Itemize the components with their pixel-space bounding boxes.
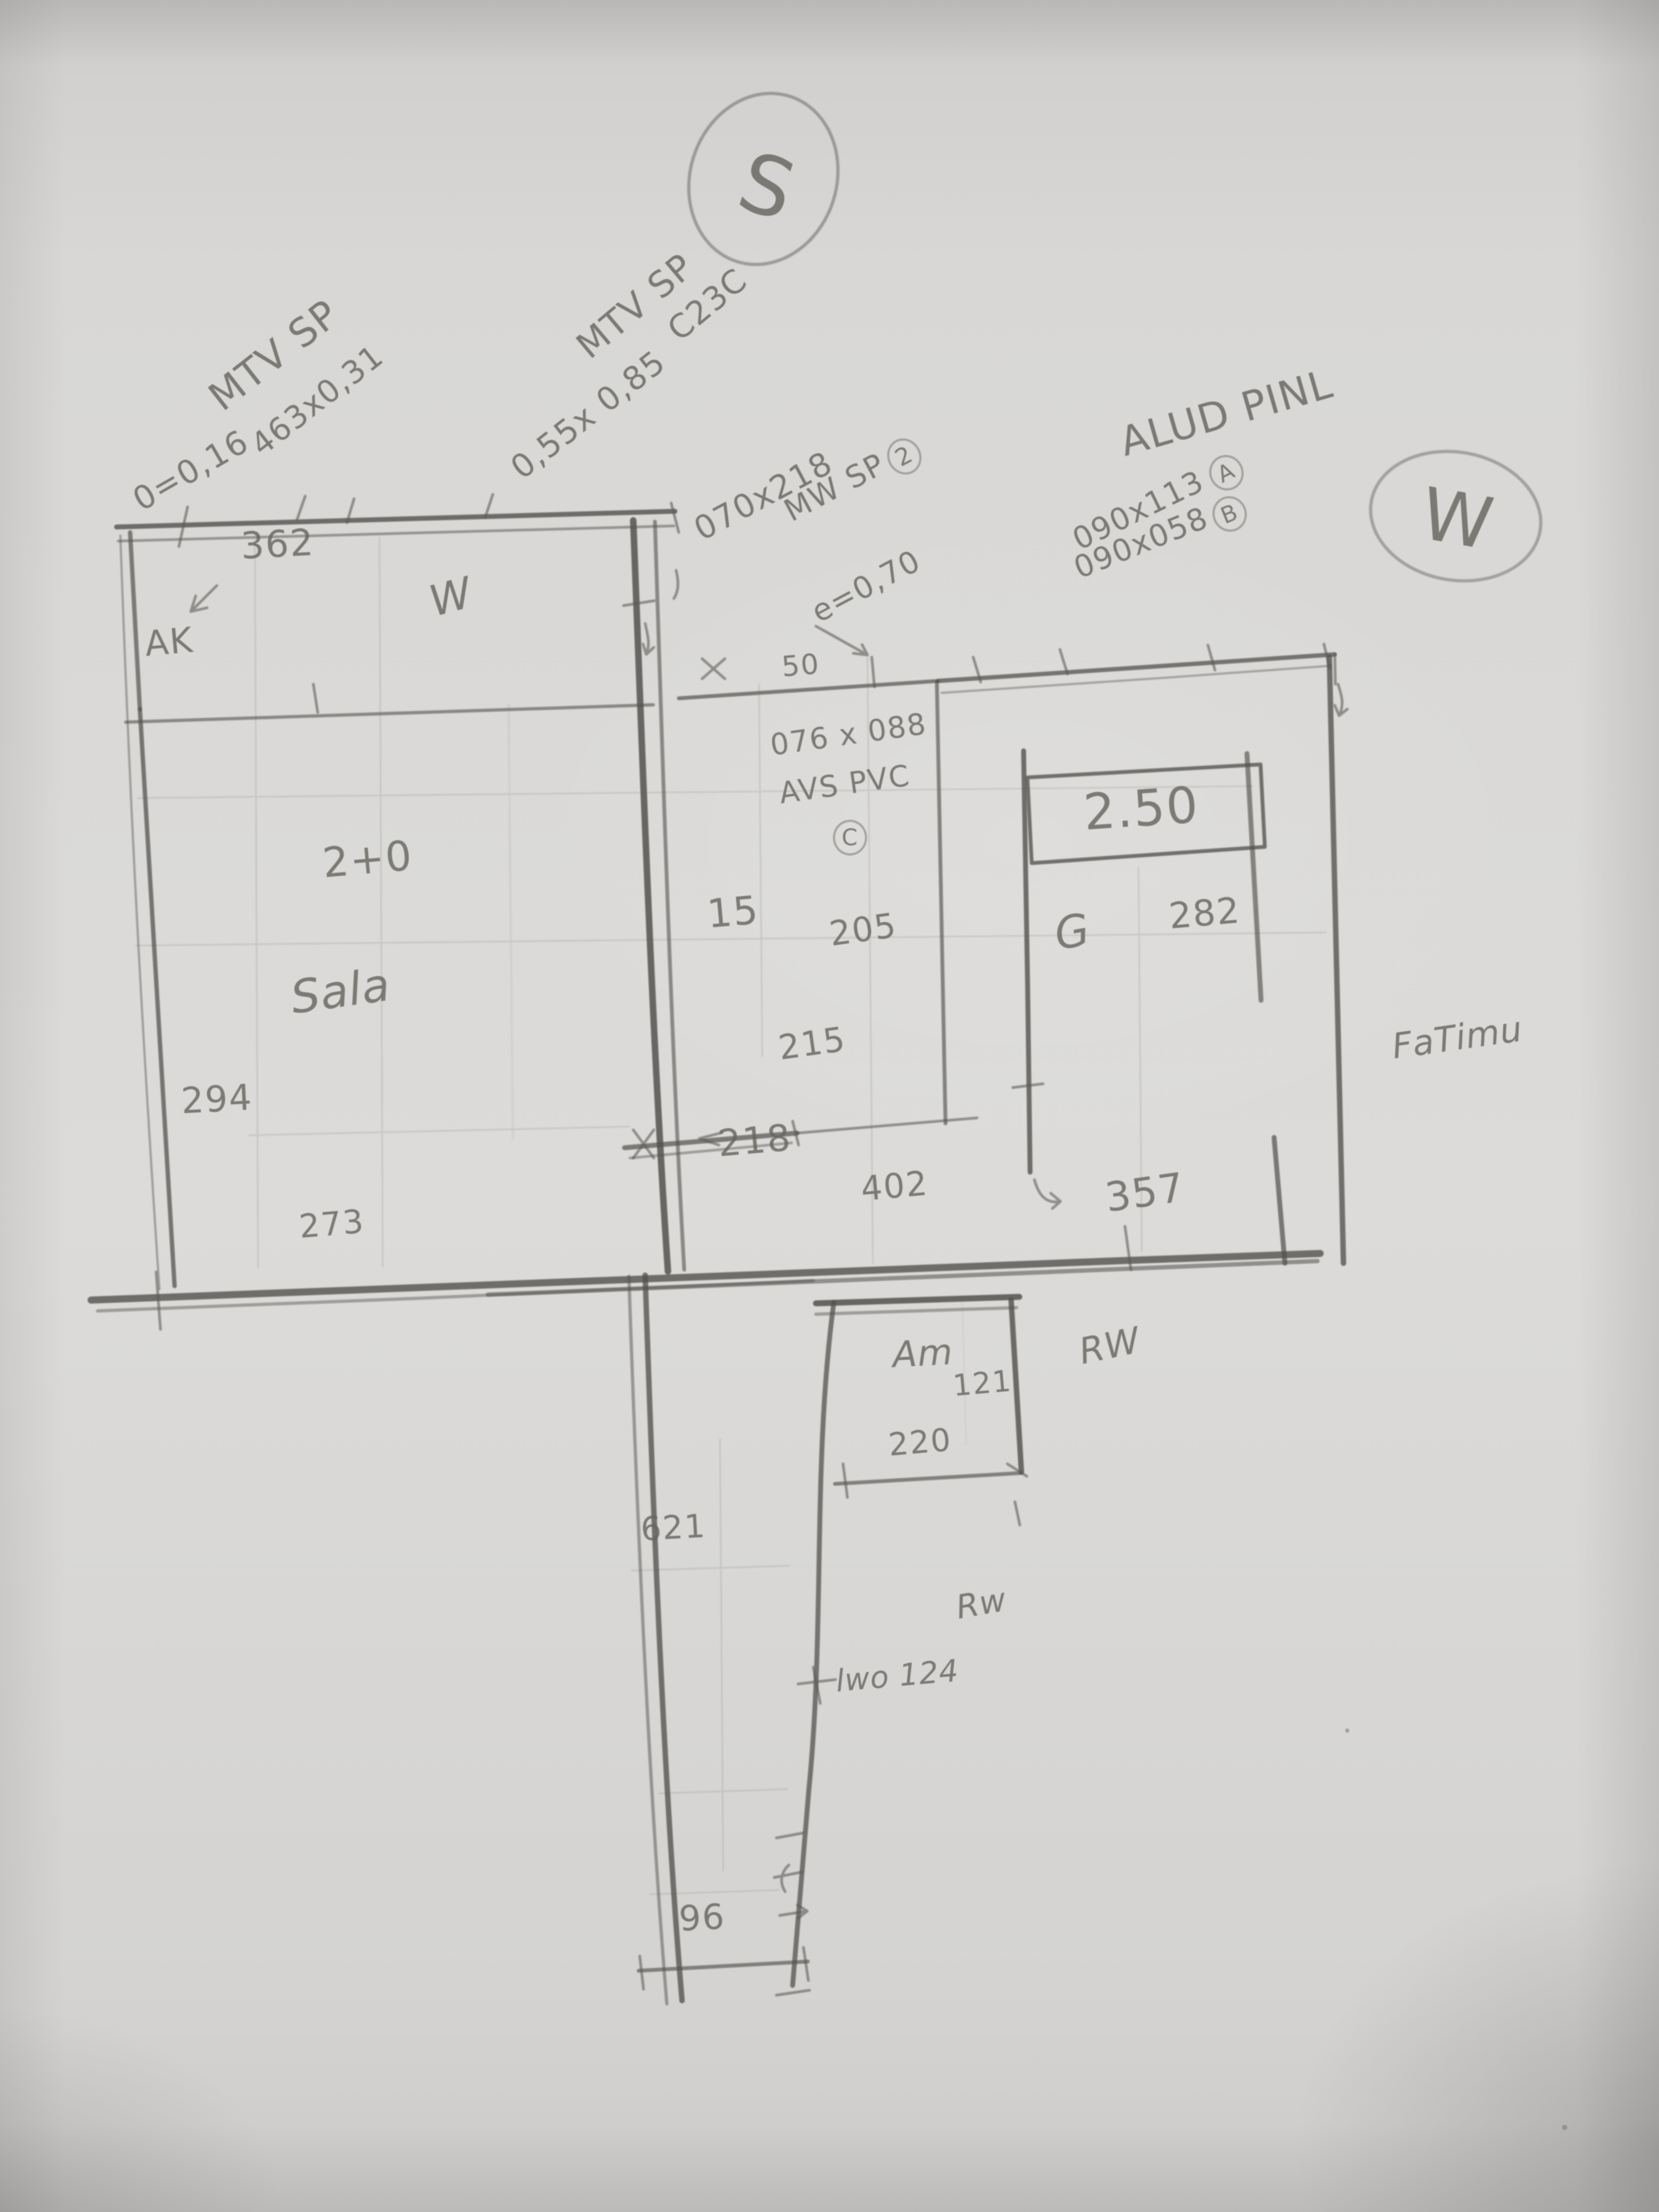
mark-g: G: [1051, 908, 1094, 957]
pencil-dot: [1562, 2125, 1567, 2130]
dim-96: 96: [678, 1900, 726, 1937]
pencil-dot: [1345, 1728, 1349, 1733]
dim-121: 121: [951, 1366, 1013, 1400]
dim-402: 402: [859, 1167, 929, 1206]
tick-marks: [156, 494, 1347, 1995]
note-ak: AK: [144, 623, 195, 662]
dim-15: 15: [705, 890, 761, 934]
wall-lines: [91, 511, 1343, 2004]
compass-west-letter: W: [1416, 478, 1499, 561]
room-sala: Sala: [288, 962, 393, 1021]
mark-50: 50: [781, 650, 821, 681]
dim-205: 205: [827, 909, 899, 951]
dim-282: 282: [1167, 892, 1242, 934]
dim-220: 220: [887, 1424, 953, 1461]
note-rw-lower: Rw: [954, 1583, 1009, 1624]
dim-240: 2+0: [321, 835, 414, 884]
dim-621: 621: [640, 1510, 707, 1546]
dim-362: 362: [240, 524, 315, 565]
dim-357: 357: [1103, 1167, 1187, 1218]
dim-215: 215: [776, 1023, 848, 1065]
dim-273: 273: [298, 1205, 365, 1243]
dim-294: 294: [180, 1080, 253, 1120]
room-am: Am: [892, 1334, 954, 1373]
pencil-dots: [1345, 1728, 1567, 2130]
note-avs-pvc-tag: C: [833, 820, 867, 856]
paper-sheet: SWMTV SP0=0,16463x0,31362AKWMTV SP0,55x …: [0, 0, 1659, 2212]
dim-218: 218: [716, 1120, 793, 1163]
boxed-height-250: 2.50: [1082, 780, 1201, 838]
